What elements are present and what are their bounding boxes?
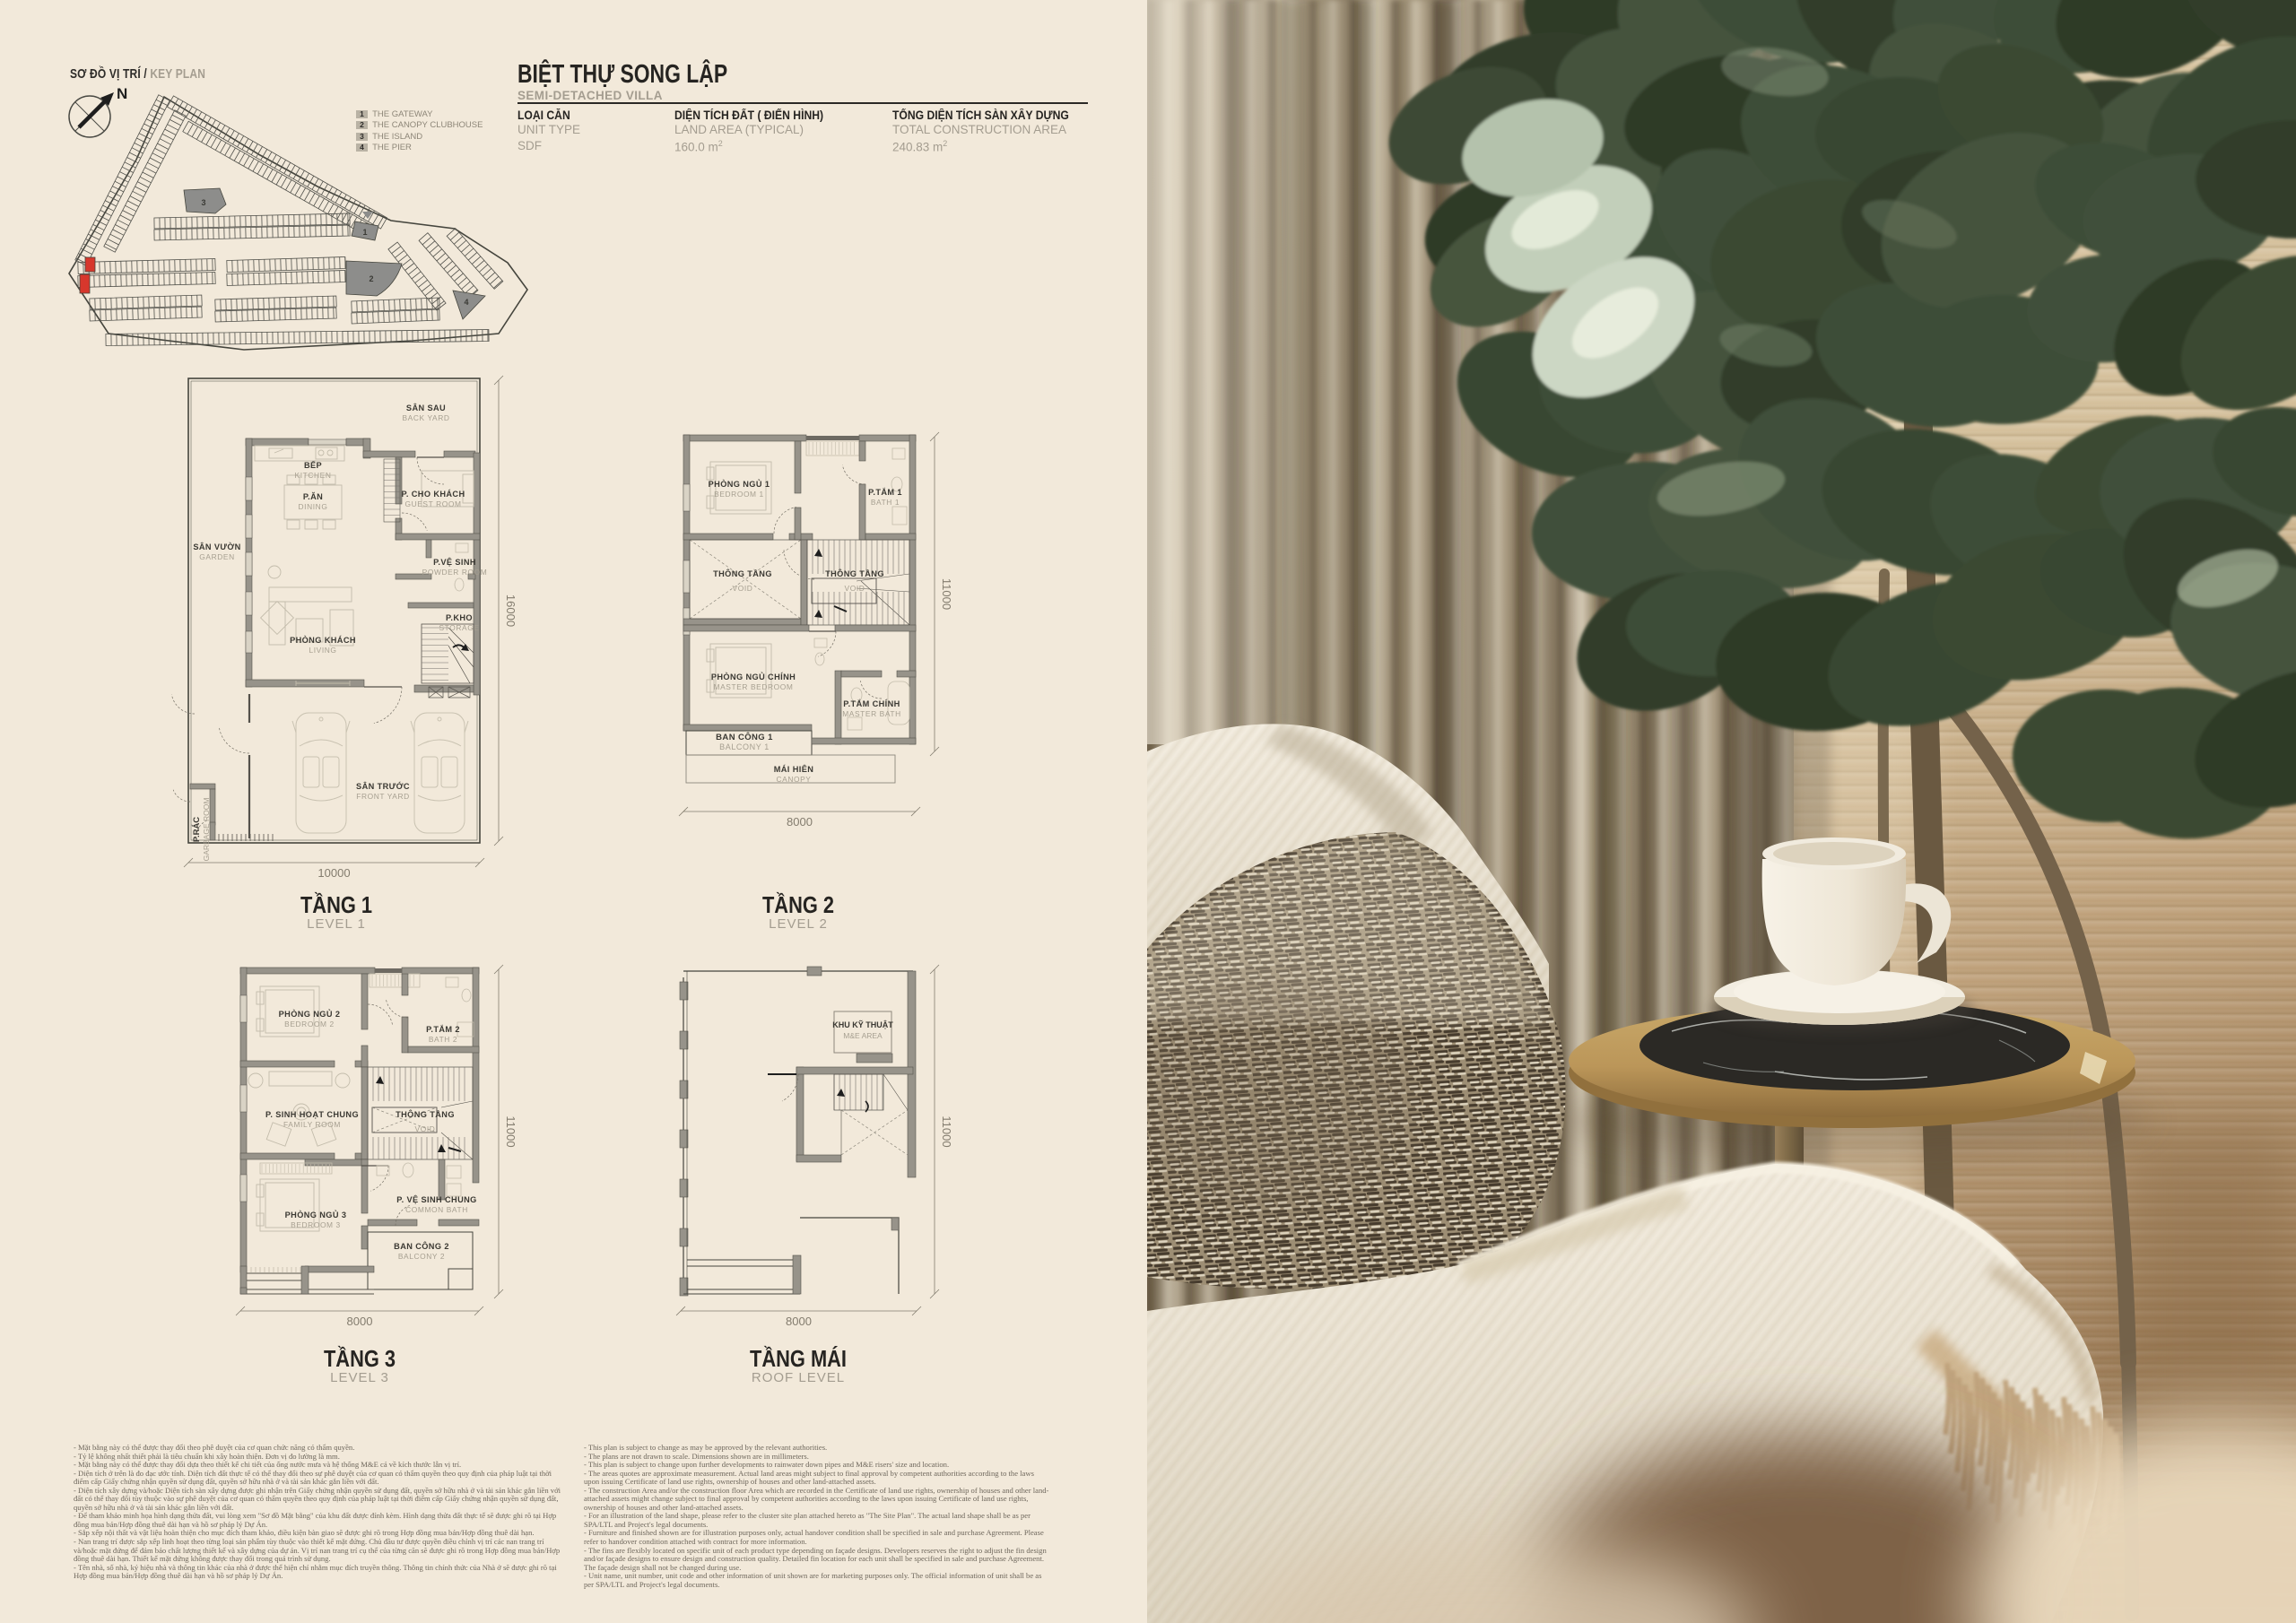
svg-text:CANOPY: CANOPY [777, 775, 812, 784]
svg-text:FAMILY ROOM: FAMILY ROOM [283, 1120, 341, 1129]
svg-text:8000: 8000 [347, 1315, 373, 1328]
svg-text:PHÒNG NGỦ 3: PHÒNG NGỦ 3 [285, 1210, 347, 1219]
svg-text:VOID: VOID [415, 1124, 436, 1133]
svg-text:THÔNG TẦNG: THÔNG TẦNG [713, 568, 772, 578]
svg-text:KHU KỸ THUẬT: KHU KỸ THUẬT [832, 1020, 893, 1029]
svg-text:P.ĂN: P.ĂN [303, 492, 323, 501]
svg-text:POWDER ROOM: POWDER ROOM [422, 568, 488, 577]
svg-text:BEDROOM 2: BEDROOM 2 [284, 1020, 335, 1028]
svg-text:10000: 10000 [317, 866, 350, 880]
svg-text:PHÒNG NGỦ 2: PHÒNG NGỦ 2 [279, 1009, 341, 1019]
svg-text:8000: 8000 [787, 815, 813, 829]
svg-text:P. VỆ SINH CHUNG: P. VỆ SINH CHUNG [396, 1194, 476, 1204]
svg-text:P.KHO: P.KHO [446, 613, 473, 622]
svg-text:VOID: VOID [845, 584, 865, 593]
svg-text:P.TẮM 2: P.TẮM 2 [426, 1025, 460, 1034]
svg-text:BATH 2: BATH 2 [429, 1035, 457, 1044]
svg-text:8000: 8000 [786, 1315, 812, 1328]
svg-text:DINING: DINING [299, 502, 328, 511]
svg-text:P. SINH HOẠT CHUNG: P. SINH HOẠT CHUNG [265, 1110, 359, 1119]
svg-text:M&E AREA: M&E AREA [843, 1031, 883, 1040]
svg-text:THÔNG TẦNG: THÔNG TẦNG [396, 1109, 455, 1119]
svg-text:P.VỆ SINH: P.VỆ SINH [433, 557, 476, 567]
svg-text:SÂN SAU: SÂN SAU [406, 403, 446, 412]
svg-text:1: 1 [362, 228, 367, 237]
svg-text:VOID: VOID [733, 584, 753, 593]
svg-text:BAN CÔNG 1: BAN CÔNG 1 [716, 732, 773, 742]
svg-text:BEDROOM 3: BEDROOM 3 [291, 1220, 341, 1229]
svg-text:PHÒNG KHÁCH: PHÒNG KHÁCH [290, 635, 356, 645]
svg-text:KITCHEN: KITCHEN [295, 471, 332, 480]
svg-text:P. CHO KHÁCH: P. CHO KHÁCH [402, 489, 465, 499]
svg-text:BALCONY 1: BALCONY 1 [719, 742, 770, 751]
svg-text:SÂN VƯỜN: SÂN VƯỜN [193, 542, 240, 551]
svg-text:MASTER BEDROOM: MASTER BEDROOM [714, 682, 794, 691]
svg-text:4: 4 [464, 298, 468, 307]
svg-text:BATH 1: BATH 1 [871, 498, 900, 507]
svg-text:3: 3 [201, 198, 205, 207]
svg-text:MÁI HIÊN: MÁI HIÊN [774, 764, 814, 774]
svg-text:GARBAGE ROOM: GARBAGE ROOM [202, 798, 211, 862]
svg-text:BẾP: BẾP [304, 461, 322, 470]
svg-text:GARDEN: GARDEN [199, 552, 234, 561]
svg-text:P.RÁC: P.RÁC [192, 817, 202, 842]
svg-text:PHÒNG NGỦ 1: PHÒNG NGỦ 1 [709, 479, 770, 489]
svg-text:STORAGE: STORAGE [439, 623, 480, 632]
svg-text:SÂN TRƯỚC: SÂN TRƯỚC [356, 781, 410, 791]
svg-text:MASTER BATH: MASTER BATH [842, 709, 901, 718]
svg-text:FRONT YARD: FRONT YARD [356, 792, 410, 801]
svg-text:P.TẮM 1: P.TẮM 1 [868, 488, 902, 497]
svg-text:2: 2 [369, 274, 373, 283]
svg-text:11000: 11000 [940, 578, 953, 610]
svg-text:LIVING: LIVING [309, 646, 336, 655]
svg-text:P.TẮM CHÍNH: P.TẮM CHÍNH [843, 699, 900, 708]
svg-text:THÔNG TẦNG: THÔNG TẦNG [825, 568, 884, 578]
svg-text:COMMON BATH: COMMON BATH [405, 1205, 468, 1214]
svg-text:GUEST ROOM: GUEST ROOM [404, 499, 461, 508]
svg-text:BALCONY 2: BALCONY 2 [398, 1252, 445, 1261]
svg-text:BACK YARD: BACK YARD [402, 413, 449, 422]
svg-text:16000: 16000 [504, 595, 517, 627]
svg-text:PHÒNG NGỦ CHÍNH: PHÒNG NGỦ CHÍNH [711, 672, 796, 681]
svg-text:11000: 11000 [504, 1115, 517, 1147]
svg-text:11000: 11000 [940, 1115, 953, 1147]
svg-text:BEDROOM 1: BEDROOM 1 [714, 490, 764, 499]
svg-text:BAN CÔNG 2: BAN CÔNG 2 [394, 1241, 449, 1251]
